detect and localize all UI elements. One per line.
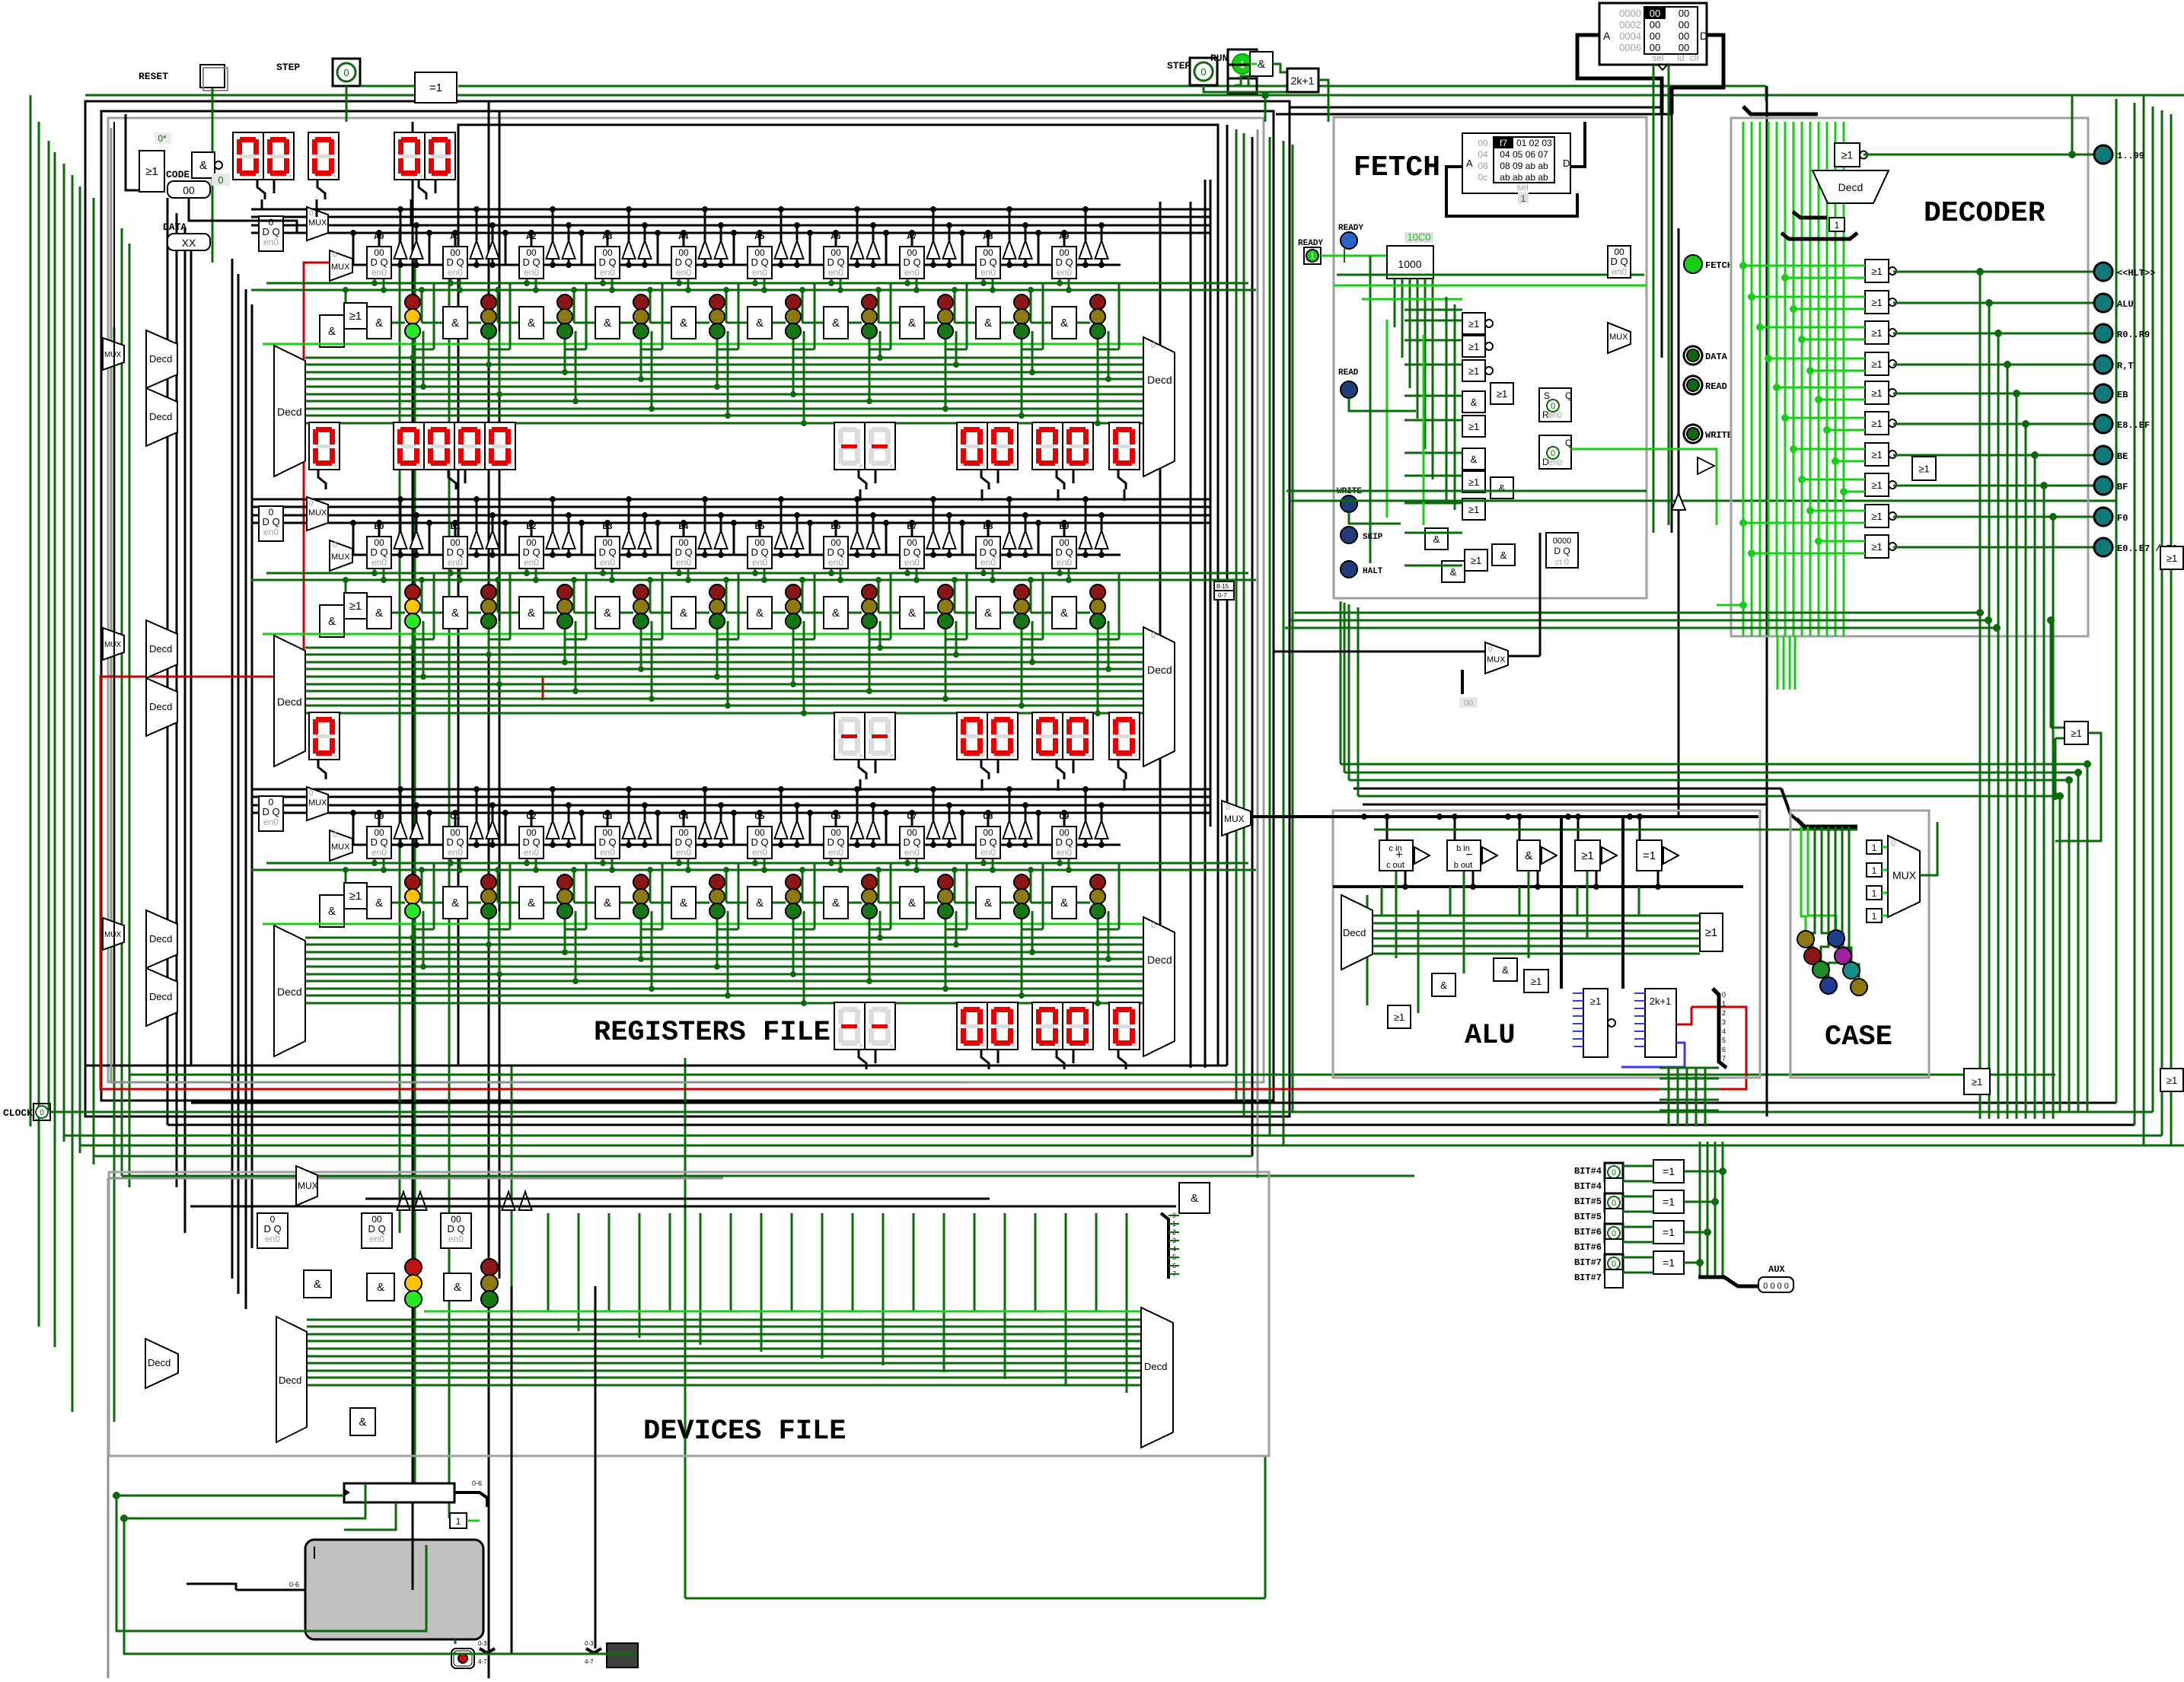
svg-text:BIT#6: BIT#6 xyxy=(1574,1227,1602,1238)
svg-text:&: & xyxy=(604,897,611,909)
svg-text:&: & xyxy=(1060,607,1068,620)
svg-text:&: & xyxy=(1499,483,1506,494)
svg-text:1..99: 1..99 xyxy=(2117,151,2144,161)
svg-text:00: 00 xyxy=(1464,699,1473,708)
svg-text:en0: en0 xyxy=(448,267,463,278)
svg-text:&: & xyxy=(1060,897,1068,909)
svg-text:en0: en0 xyxy=(1612,266,1627,277)
svg-text:RESET: RESET xyxy=(139,71,168,82)
svg-text:D Q: D Q xyxy=(979,546,996,558)
svg-text:≥1: ≥1 xyxy=(1871,297,1882,308)
svg-text:en0: en0 xyxy=(263,527,279,537)
svg-text:DATA: DATA xyxy=(163,221,187,233)
svg-text:≥1: ≥1 xyxy=(1871,479,1882,491)
svg-text:en0: en0 xyxy=(980,557,996,568)
svg-text:READY: READY xyxy=(1338,224,1363,233)
svg-text:≥1: ≥1 xyxy=(1871,387,1882,399)
svg-text:0: 0 xyxy=(1551,402,1555,411)
svg-text:en0: en0 xyxy=(371,847,387,858)
svg-text:00: 00 xyxy=(1679,30,1689,42)
svg-text:&: & xyxy=(314,1278,321,1291)
svg-text:D Q: D Q xyxy=(446,836,464,848)
svg-text:0-3: 0-3 xyxy=(478,1640,487,1647)
svg-text:&: & xyxy=(1191,1192,1198,1205)
svg-text:0: 0 xyxy=(309,499,314,508)
svg-text:D Q: D Q xyxy=(903,836,920,848)
svg-text:en0: en0 xyxy=(524,267,539,278)
svg-text:0 0 0 0: 0 0 0 0 xyxy=(1763,1282,1789,1291)
svg-text:Decd: Decd xyxy=(149,701,172,712)
svg-text:Decd: Decd xyxy=(1147,954,1172,966)
svg-text:en0: en0 xyxy=(524,847,539,858)
svg-text:D Q: D Q xyxy=(370,256,387,268)
svg-text:00: 00 xyxy=(1478,138,1488,148)
svg-text:en0: en0 xyxy=(369,1234,384,1244)
svg-text:D Q: D Q xyxy=(674,836,692,848)
svg-text:1: 1 xyxy=(1310,252,1315,261)
svg-text:10C0: 10C0 xyxy=(1407,231,1430,243)
svg-text:&: & xyxy=(1525,849,1532,862)
svg-text:≥1: ≥1 xyxy=(1871,327,1882,339)
svg-text:D Q: D Q xyxy=(827,546,844,558)
svg-text:2: 2 xyxy=(1722,1009,1726,1017)
svg-text:en0: en0 xyxy=(265,1234,280,1244)
svg-text:0: 0 xyxy=(40,1109,44,1117)
svg-text:≥1: ≥1 xyxy=(349,890,362,903)
svg-text:Q: Q xyxy=(1565,438,1572,448)
svg-text:en0: en0 xyxy=(448,557,463,568)
svg-text:E8..EF: E8..EF xyxy=(2117,420,2150,431)
svg-text:≥1: ≥1 xyxy=(2166,1075,2177,1086)
svg-text:00: 00 xyxy=(1650,19,1660,30)
svg-text:0-3: 0-3 xyxy=(585,1640,594,1647)
svg-text:D: D xyxy=(1700,30,1707,42)
svg-text:en0: en0 xyxy=(371,267,387,278)
svg-text:&: & xyxy=(1433,534,1440,545)
svg-text:08: 08 xyxy=(1478,161,1488,171)
svg-text:0: 0 xyxy=(1612,1229,1616,1238)
svg-text:0: 0 xyxy=(1612,1168,1616,1177)
svg-text:&: & xyxy=(604,607,611,620)
svg-text:8-15: 8-15 xyxy=(1216,583,1229,590)
svg-text:D: D xyxy=(1563,158,1570,169)
svg-text:≥1: ≥1 xyxy=(1468,318,1479,330)
svg-text:01 02 03: 01 02 03 xyxy=(1516,138,1552,148)
svg-text:&: & xyxy=(451,317,459,330)
svg-text:=1: =1 xyxy=(1643,849,1656,862)
svg-text:0: 0 xyxy=(333,541,337,550)
svg-text:&: & xyxy=(984,317,992,330)
svg-text:0000: 0000 xyxy=(1553,537,1571,546)
svg-text:0: 0 xyxy=(1488,645,1493,654)
svg-text:Decd: Decd xyxy=(277,696,302,708)
svg-text:en0: en0 xyxy=(600,557,615,568)
svg-text:1: 1 xyxy=(1872,911,1877,922)
svg-text:&: & xyxy=(528,897,535,909)
svg-text:D Q: D Q xyxy=(598,546,616,558)
svg-text:WRITE: WRITE xyxy=(1705,430,1733,441)
svg-text:MUX: MUX xyxy=(331,553,350,562)
svg-text:BIT#7: BIT#7 xyxy=(1574,1273,1602,1283)
svg-text:MUX: MUX xyxy=(308,798,327,808)
svg-text:CASE: CASE xyxy=(1825,1021,1892,1053)
svg-text:en0: en0 xyxy=(263,237,279,247)
svg-text:D Q: D Q xyxy=(262,806,279,817)
svg-text:D Q: D Q xyxy=(598,256,616,268)
svg-text:≥1: ≥1 xyxy=(349,600,362,613)
svg-text:D Q: D Q xyxy=(903,546,920,558)
svg-text:en0: en0 xyxy=(980,267,996,278)
svg-text:RUN: RUN xyxy=(1210,53,1228,64)
svg-text:BE: BE xyxy=(2117,451,2128,462)
svg-text:0: 0 xyxy=(1151,631,1156,640)
svg-text:MUX: MUX xyxy=(1892,869,1917,881)
svg-text:0: 0 xyxy=(1551,449,1555,458)
svg-text:en0: en0 xyxy=(828,557,843,568)
svg-text:&: & xyxy=(454,1281,461,1294)
svg-text:≥1: ≥1 xyxy=(1871,541,1882,553)
svg-text:00: 00 xyxy=(1650,42,1660,53)
svg-text:CODE: CODE xyxy=(166,169,190,180)
svg-text:Decd: Decd xyxy=(277,406,302,418)
svg-text:en0: en0 xyxy=(1548,458,1562,467)
svg-text:A: A xyxy=(1603,30,1611,42)
svg-text:1: 1 xyxy=(1521,193,1526,204)
svg-text:en0: en0 xyxy=(600,847,615,858)
svg-text:sel: sel xyxy=(1516,182,1528,193)
svg-text:en0: en0 xyxy=(448,1234,464,1244)
svg-text:&: & xyxy=(908,897,916,909)
svg-text:D Q: D Q xyxy=(447,1223,464,1234)
svg-text:D Q: D Q xyxy=(522,546,540,558)
svg-text:&: & xyxy=(984,607,992,620)
svg-text:ld: ld xyxy=(1677,53,1684,63)
svg-text:≥1: ≥1 xyxy=(145,165,158,178)
svg-text:&: & xyxy=(604,317,611,330)
svg-text:en0: en0 xyxy=(371,557,387,568)
svg-text:MUX: MUX xyxy=(308,508,327,518)
svg-text:en0: en0 xyxy=(1057,267,1072,278)
svg-text:&: & xyxy=(1471,397,1478,408)
svg-text:≥1: ≥1 xyxy=(1972,1076,1982,1088)
svg-text:6: 6 xyxy=(1722,1046,1726,1053)
svg-text:&: & xyxy=(756,607,764,620)
svg-text:BIT#5: BIT#5 xyxy=(1574,1212,1602,1222)
svg-text:&: & xyxy=(680,607,687,620)
svg-text:08 09 ab ab: 08 09 ab ab xyxy=(1500,161,1548,171)
svg-text:04 05 06 07: 04 05 06 07 xyxy=(1500,149,1548,160)
svg-text:≥1: ≥1 xyxy=(1871,511,1882,522)
svg-text:0: 0 xyxy=(343,67,349,78)
svg-text:en0: en0 xyxy=(676,557,691,568)
svg-text:00: 00 xyxy=(183,184,195,196)
svg-text:f7: f7 xyxy=(1500,138,1507,148)
svg-text:&: & xyxy=(908,317,916,330)
svg-text:00: 00 xyxy=(1650,30,1660,42)
svg-text:en0: en0 xyxy=(752,557,767,568)
svg-text:D Q: D Q xyxy=(263,1223,281,1234)
svg-text:en0: en0 xyxy=(904,267,920,278)
svg-text:D Q: D Q xyxy=(522,836,540,848)
svg-text:=1: =1 xyxy=(1663,1257,1675,1269)
svg-text:&: & xyxy=(1502,964,1509,976)
svg-text:≥1: ≥1 xyxy=(1531,976,1542,987)
svg-text:D Q: D Q xyxy=(827,256,844,268)
svg-text:0*: 0* xyxy=(158,133,167,144)
svg-text:&: & xyxy=(199,159,207,172)
svg-text:DATA: DATA xyxy=(1705,352,1728,362)
svg-text:≥1: ≥1 xyxy=(1471,555,1481,566)
svg-text:Decd: Decd xyxy=(1147,374,1172,386)
svg-text:Decd: Decd xyxy=(279,1375,301,1386)
svg-text:&: & xyxy=(1471,454,1478,465)
svg-text:D Q: D Q xyxy=(674,546,692,558)
svg-text:0: 0 xyxy=(1226,804,1230,812)
svg-text:&: & xyxy=(756,317,764,330)
svg-text:0006: 0006 xyxy=(1619,42,1641,53)
svg-text:1: 1 xyxy=(1835,220,1840,231)
svg-text:04: 04 xyxy=(1478,149,1488,160)
svg-text:D Q: D Q xyxy=(1554,546,1570,556)
svg-text:AUX: AUX xyxy=(1768,1264,1785,1275)
svg-text:ct 0: ct 0 xyxy=(1555,558,1569,567)
svg-text:en0: en0 xyxy=(828,847,843,858)
svg-text:R0..R9: R0..R9 xyxy=(2117,330,2150,340)
svg-text:BF: BF xyxy=(2117,482,2128,492)
svg-text:≥1: ≥1 xyxy=(1468,476,1479,488)
svg-text:0: 0 xyxy=(333,831,337,839)
svg-text:D Q: D Q xyxy=(446,256,464,268)
svg-text:4-7: 4-7 xyxy=(478,1658,487,1665)
svg-text:&: & xyxy=(832,897,840,909)
svg-text:1: 1 xyxy=(456,1516,461,1527)
svg-text:b out: b out xyxy=(1454,861,1472,870)
svg-text:&: & xyxy=(328,325,336,338)
svg-text:D Q: D Q xyxy=(1610,256,1628,267)
svg-text:Q: Q xyxy=(1565,390,1572,401)
svg-text:Decd: Decd xyxy=(149,411,172,422)
svg-text:00: 00 xyxy=(1650,8,1660,19)
svg-text:≥1: ≥1 xyxy=(1705,926,1718,939)
svg-text:STEP: STEP xyxy=(1167,60,1191,72)
svg-text:Decd: Decd xyxy=(149,933,172,945)
svg-text:sel: sel xyxy=(1652,53,1663,63)
svg-text:D Q: D Q xyxy=(674,256,692,268)
svg-text:−: − xyxy=(1465,849,1472,862)
svg-text:4: 4 xyxy=(1722,1027,1726,1035)
svg-text:≥1: ≥1 xyxy=(1468,365,1479,377)
svg-text:1000: 1000 xyxy=(1398,258,1421,270)
svg-text:&: & xyxy=(528,607,535,620)
svg-text:Decd: Decd xyxy=(1147,664,1172,676)
svg-text:7: 7 xyxy=(1722,1055,1726,1062)
svg-text:0: 0 xyxy=(1151,341,1156,350)
svg-text:≥1: ≥1 xyxy=(1497,388,1507,400)
svg-text:MUX: MUX xyxy=(298,1180,318,1191)
svg-text:D Q: D Q xyxy=(1055,546,1073,558)
svg-text:&: & xyxy=(375,897,383,909)
svg-text:≥1: ≥1 xyxy=(1468,504,1479,515)
svg-text:MUX: MUX xyxy=(331,843,350,852)
svg-text:&: & xyxy=(359,1416,366,1429)
svg-text:READ: READ xyxy=(1338,368,1359,377)
svg-text:0002: 0002 xyxy=(1619,19,1641,30)
svg-text:0: 0 xyxy=(218,174,223,186)
svg-text:0-6: 0-6 xyxy=(289,1581,299,1588)
svg-text:D Q: D Q xyxy=(262,226,279,237)
svg-text:&: & xyxy=(328,615,336,628)
svg-text:MUX: MUX xyxy=(104,641,122,649)
svg-text:≥1: ≥1 xyxy=(1841,149,1854,161)
svg-text:&: & xyxy=(756,897,764,909)
svg-text:<<HLT>>: <<HLT>> xyxy=(2117,268,2155,279)
svg-text:en0: en0 xyxy=(676,267,691,278)
svg-text:1: 1 xyxy=(1872,865,1877,876)
svg-text:&: & xyxy=(1258,58,1265,71)
svg-text:READ: READ xyxy=(1705,381,1727,392)
svg-text:Decd: Decd xyxy=(148,1357,171,1368)
svg-text:en0: en0 xyxy=(1057,847,1072,858)
svg-text:EB: EB xyxy=(2117,390,2128,400)
svg-text:Decd: Decd xyxy=(1144,1361,1167,1372)
svg-text:MUX: MUX xyxy=(1487,655,1506,664)
svg-text:0-6: 0-6 xyxy=(472,1480,482,1487)
svg-text:3: 3 xyxy=(1722,1018,1726,1026)
svg-text:en0: en0 xyxy=(1057,557,1072,568)
svg-text:0: 0 xyxy=(1151,921,1156,930)
svg-text:Decd: Decd xyxy=(277,986,302,998)
svg-text:D Q: D Q xyxy=(446,546,464,558)
svg-text:BIT#4: BIT#4 xyxy=(1574,1181,1602,1192)
svg-text:en0: en0 xyxy=(600,267,615,278)
svg-text:0: 0 xyxy=(1612,1199,1616,1208)
svg-text:2k+1: 2k+1 xyxy=(1291,75,1315,87)
svg-text:&: & xyxy=(680,317,687,330)
svg-text:D Q: D Q xyxy=(1055,836,1073,848)
svg-text:en0: en0 xyxy=(448,847,463,858)
svg-text:DEVICES FILE: DEVICES FILE xyxy=(643,1416,846,1448)
svg-text:&: & xyxy=(832,607,840,620)
svg-text:CLOCK: CLOCK xyxy=(3,1107,33,1119)
svg-text:&: & xyxy=(1440,980,1447,991)
svg-text:MUX: MUX xyxy=(331,263,350,272)
svg-text:4-7: 4-7 xyxy=(585,1658,594,1665)
svg-text:&: & xyxy=(908,607,916,620)
svg-text:&: & xyxy=(451,897,459,909)
svg-text:BIT#7: BIT#7 xyxy=(1574,1257,1602,1268)
svg-text:D Q: D Q xyxy=(979,256,996,268)
svg-text:R,T: R,T xyxy=(2117,361,2134,371)
svg-text:Decd: Decd xyxy=(149,353,172,365)
svg-text:Decd: Decd xyxy=(149,991,172,1002)
svg-text:BIT#5: BIT#5 xyxy=(1574,1196,1602,1207)
svg-text:en0: en0 xyxy=(752,267,767,278)
svg-text:D Q: D Q xyxy=(598,836,616,848)
svg-text:D Q: D Q xyxy=(368,1223,385,1234)
svg-text:en0: en0 xyxy=(828,267,843,278)
svg-text:ab ab ab ab: ab ab ab ab xyxy=(1500,172,1548,183)
svg-text:0000: 0000 xyxy=(1619,8,1641,19)
svg-text:D Q: D Q xyxy=(751,836,768,848)
svg-text:MUX: MUX xyxy=(104,931,122,939)
svg-text:0: 0 xyxy=(309,209,314,218)
svg-text:1: 1 xyxy=(1872,843,1877,853)
svg-text:0: 0 xyxy=(1200,66,1206,78)
svg-text:D Q: D Q xyxy=(522,256,540,268)
svg-text:D Q: D Q xyxy=(979,836,996,848)
svg-text:D Q: D Q xyxy=(827,836,844,848)
svg-text:SKIP: SKIP xyxy=(1363,533,1383,542)
svg-text:F0: F0 xyxy=(2117,513,2128,524)
svg-text:&: & xyxy=(451,607,459,620)
svg-text:MUX: MUX xyxy=(308,218,327,228)
svg-text:MUX: MUX xyxy=(1609,333,1628,342)
svg-text:BIT#4: BIT#4 xyxy=(1574,1166,1602,1177)
svg-text:0: 0 xyxy=(1891,839,1895,849)
svg-text:Decd: Decd xyxy=(1838,181,1864,193)
svg-text:&: & xyxy=(1060,317,1068,330)
svg-text:0: 0 xyxy=(333,251,337,260)
svg-text:DECODER: DECODER xyxy=(1924,197,2045,230)
svg-text:0c: 0c xyxy=(1478,172,1488,183)
svg-text:FETCH: FETCH xyxy=(1705,260,1733,271)
svg-text:00: 00 xyxy=(1679,42,1689,53)
svg-text:&: & xyxy=(375,317,383,330)
svg-text:HALT: HALT xyxy=(1363,567,1383,576)
svg-text:en0: en0 xyxy=(1548,411,1562,420)
svg-text:1: 1 xyxy=(1722,1000,1726,1008)
svg-text:D Q: D Q xyxy=(370,546,387,558)
svg-text:&: & xyxy=(984,897,992,909)
svg-text:≥1: ≥1 xyxy=(1871,418,1882,429)
svg-text:en0: en0 xyxy=(980,847,996,858)
svg-text:XX: XX xyxy=(182,237,196,249)
svg-text:&: & xyxy=(328,905,336,918)
svg-text:clr: clr xyxy=(1690,53,1700,63)
svg-text:5: 5 xyxy=(1722,1037,1726,1044)
svg-text:MUX: MUX xyxy=(104,351,122,359)
svg-text:+: + xyxy=(1395,849,1402,862)
svg-text:1: 1 xyxy=(1872,888,1877,899)
svg-text:=1: =1 xyxy=(1663,1226,1675,1238)
svg-text:D Q: D Q xyxy=(751,256,768,268)
svg-text:en0: en0 xyxy=(752,847,767,858)
svg-text:00: 00 xyxy=(1679,8,1689,19)
svg-text:D Q: D Q xyxy=(903,256,920,268)
svg-text:S: S xyxy=(1544,390,1550,401)
svg-text:≥1: ≥1 xyxy=(1590,996,1601,1007)
svg-text:0: 0 xyxy=(1612,1260,1616,1269)
svg-text:≥1: ≥1 xyxy=(2071,728,2081,739)
svg-text:Decd: Decd xyxy=(1343,927,1366,938)
svg-text:2k+1: 2k+1 xyxy=(1650,996,1672,1007)
svg-text:en0: en0 xyxy=(524,557,539,568)
svg-text:=1: =1 xyxy=(1663,1196,1675,1208)
svg-text:BIT#6: BIT#6 xyxy=(1574,1242,1602,1253)
svg-text:≥1: ≥1 xyxy=(1468,341,1479,352)
svg-text:&: & xyxy=(375,607,383,620)
svg-text:D Q: D Q xyxy=(1055,256,1073,268)
svg-text:&: & xyxy=(528,317,535,330)
svg-text:0: 0 xyxy=(1722,991,1726,999)
svg-text:&: & xyxy=(832,317,840,330)
svg-text:0004: 0004 xyxy=(1619,30,1641,42)
svg-text:≥1: ≥1 xyxy=(1871,266,1882,277)
svg-text:=1: =1 xyxy=(429,81,442,94)
svg-text:≥1: ≥1 xyxy=(1394,1011,1404,1023)
svg-text:ALU: ALU xyxy=(1465,1020,1516,1052)
svg-text:=1: =1 xyxy=(1663,1165,1675,1177)
